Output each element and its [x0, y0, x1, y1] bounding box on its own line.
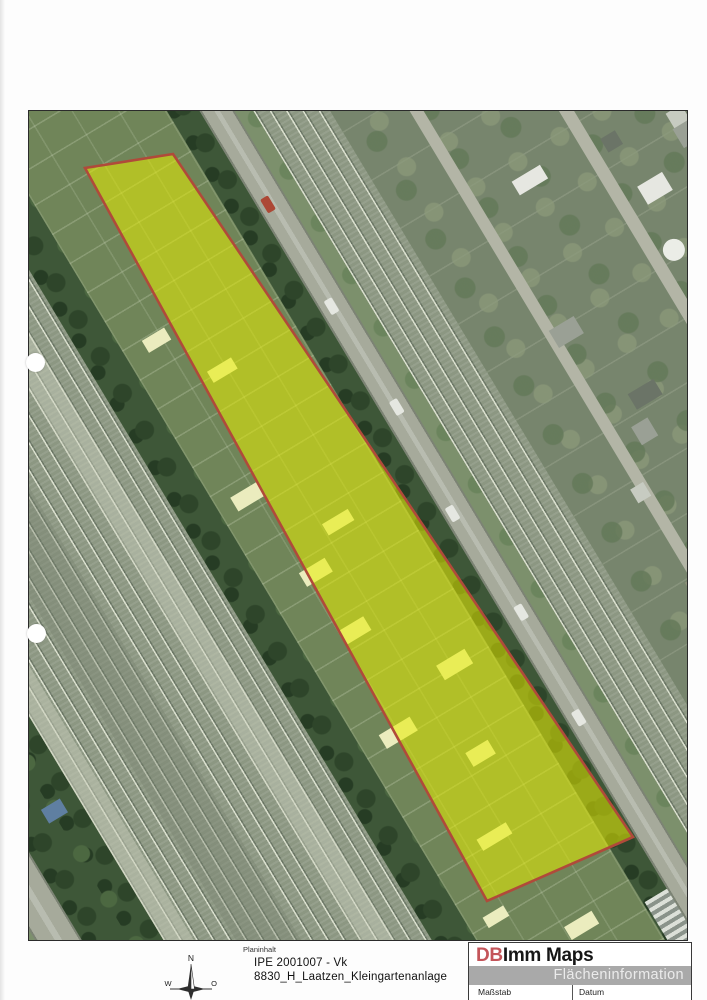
scanner-edge-shadow [0, 0, 5, 1000]
section-bar: Flächeninformation [469, 966, 691, 985]
compass-rose: N W O [160, 952, 222, 1000]
hole-punch-top [26, 353, 45, 372]
info-box: DBImm Maps Flächeninformation Maßstab Da… [468, 942, 692, 1000]
brand-db: DB [476, 945, 503, 966]
plan-id-line: IPE 2001007 - Vk [243, 957, 447, 971]
plan-name-line: 8830_H_Laatzen_Kleingartenanlage [243, 971, 447, 985]
brand-rest: Imm Maps [503, 945, 594, 966]
compass-label-o: O [211, 979, 217, 988]
compass-label-w: W [164, 979, 172, 988]
scanned-page: N W O Planinhalt IPE 2001007 - Vk 8830_H… [0, 0, 707, 1000]
aerial-map [28, 110, 688, 941]
brand-title: DBImm Maps [469, 943, 691, 966]
compass-label-n: N [188, 953, 194, 963]
datum-field-label: Datum [573, 985, 691, 1000]
plan-info-block: Planinhalt IPE 2001007 - Vk 8830_H_Laatz… [243, 945, 447, 984]
aerial-world [28, 110, 688, 941]
planinhalt-label: Planinhalt [243, 945, 447, 954]
fields-row: Maßstab Datum [469, 985, 691, 1000]
hole-punch-bottom [27, 624, 46, 643]
massstab-field-label: Maßstab [469, 985, 573, 1000]
